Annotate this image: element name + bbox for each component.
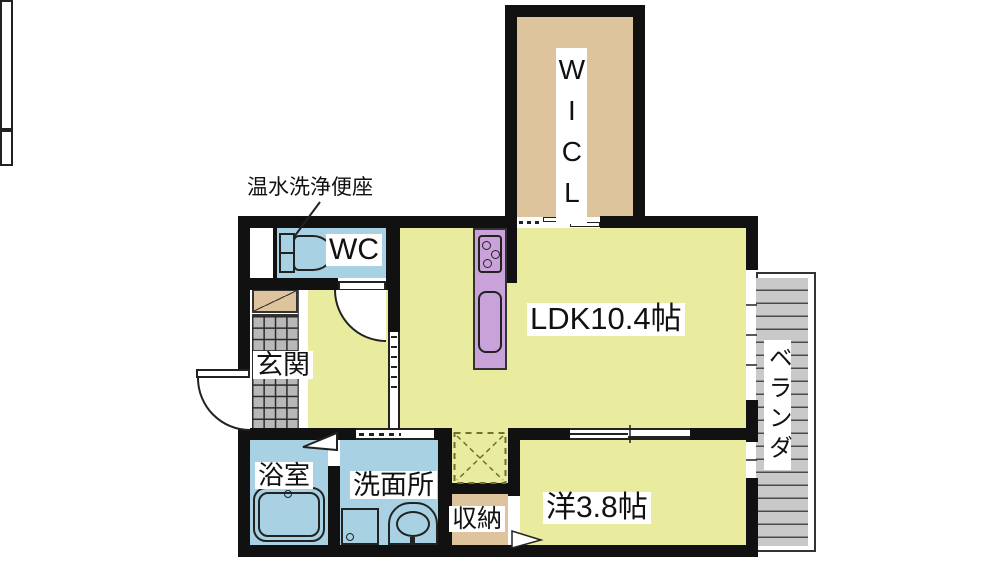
floor-plan: 温水洗浄便座 WC LDK10.4帖 玄関 浴室 洗面所 収納 洋3.8帖 WI… (0, 0, 1000, 562)
hall-ldk-sliding-door (388, 332, 400, 428)
wall (238, 428, 250, 557)
wash-basin-icon (396, 511, 430, 537)
wc-label: WC (326, 233, 382, 267)
storage-label: 収納 (449, 505, 505, 534)
bathtub-inner-icon (258, 492, 320, 537)
entrance-door-swing-arc (197, 378, 250, 431)
bathtub-faucet-icon (284, 490, 292, 498)
wall (633, 5, 645, 217)
wall (508, 428, 570, 440)
wall (505, 5, 517, 217)
wall (328, 466, 340, 545)
wall (386, 216, 400, 290)
wall (600, 216, 758, 228)
door-panel (570, 433, 628, 435)
shoe-cabinet (252, 289, 298, 313)
wc-side-niche (250, 228, 273, 278)
wall (690, 428, 746, 440)
washer-drain-icon (346, 533, 354, 541)
stove-icon (478, 235, 502, 273)
ldk-veranda-window (0, 0, 13, 130)
western-room-label: 洋3.8帖 (543, 491, 651, 525)
burner-icon (483, 259, 492, 268)
entrance-label: 玄関 (253, 350, 313, 381)
door-track-marks (391, 336, 397, 388)
veranda-label: ベランダ (764, 340, 791, 477)
wall (238, 545, 758, 557)
door-panel (628, 436, 690, 438)
wall (746, 216, 758, 270)
ldk-label: LDK10.4帖 (527, 301, 685, 337)
wall (238, 216, 517, 228)
toilet-note-label: 温水洗浄便座 (244, 176, 376, 200)
wall (746, 478, 758, 557)
door-track-marks (519, 221, 543, 224)
wall (250, 428, 356, 440)
western-room-window (0, 130, 13, 166)
washroom-label: 洗面所 (350, 470, 437, 501)
storage-door (508, 496, 519, 545)
wall (273, 228, 277, 278)
wicl-label: WICL (556, 48, 587, 231)
burner-icon (482, 241, 491, 250)
wall (505, 5, 645, 17)
door-track-marks (359, 433, 401, 436)
bathroom-label: 浴室 (255, 460, 313, 491)
burner-icon (491, 250, 500, 259)
wall (250, 278, 338, 290)
wall (440, 483, 510, 494)
entrance-door-leaf (196, 369, 250, 378)
ldk-western-sliding-door (570, 428, 690, 440)
kitchen-sink-icon (478, 291, 502, 353)
washroom-sliding-door (356, 428, 434, 440)
wall (238, 216, 250, 375)
wall (388, 290, 400, 332)
wall (507, 216, 517, 283)
wall (746, 400, 758, 442)
